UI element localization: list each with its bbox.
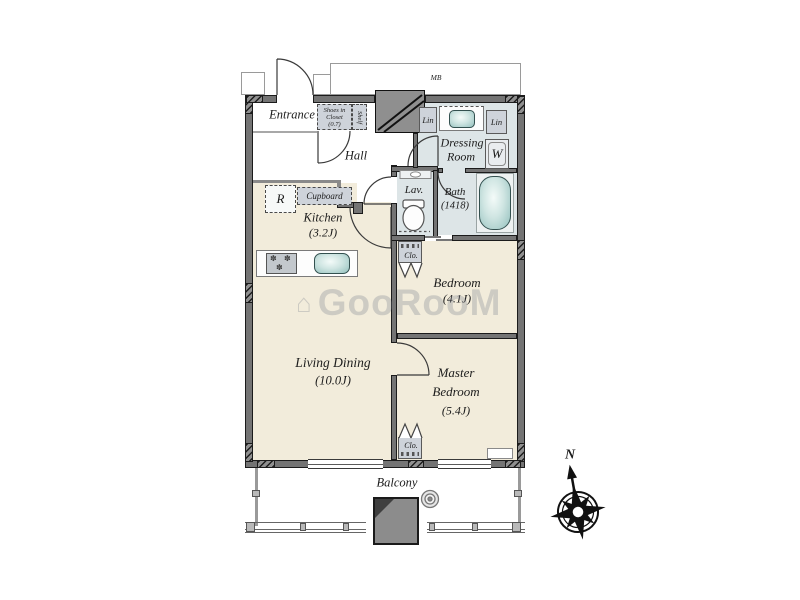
washing-machine-drum: W xyxy=(488,142,506,166)
master-closet-label: Clo. xyxy=(404,442,418,450)
hall-kitchen-wall xyxy=(253,180,340,183)
bedroom-size: (4.1J) xyxy=(443,293,471,306)
kitchen-label: Kitchen xyxy=(304,211,343,224)
lav-doorway xyxy=(391,177,397,203)
wall-hatch xyxy=(245,283,253,303)
kitchen-sink xyxy=(314,253,350,274)
hall-dressing-wall xyxy=(413,133,418,168)
master-window xyxy=(438,459,491,469)
living-dining-size: (10.0J) xyxy=(315,374,351,387)
lavatory-label: Lav. xyxy=(405,185,423,197)
wall-hatch xyxy=(408,460,424,468)
floor-plan: Shoes in Closet (0.7) Shelf R Cupboard ✽… xyxy=(0,0,800,600)
linen-right-label: Lin xyxy=(491,117,502,127)
spine-wall-b xyxy=(391,203,397,343)
closet-hatch xyxy=(401,244,419,248)
bedroom-sliding-door xyxy=(425,237,452,240)
bedroom-master-wall xyxy=(397,333,517,339)
spine-wall-c xyxy=(391,375,397,460)
rail-post xyxy=(429,523,435,531)
entrance-step-line xyxy=(253,131,317,133)
shoes-closet-label2: Closet xyxy=(326,114,343,121)
washing-machine: W xyxy=(485,139,509,169)
master-closet: Clo. xyxy=(398,437,422,459)
entrance-alcove-right xyxy=(313,74,331,95)
wall-hatch xyxy=(246,95,263,103)
dressing-room-label1: Dressing xyxy=(441,137,484,150)
hall-corner-post xyxy=(353,202,363,214)
shoes-shelf: Shelf xyxy=(352,104,367,130)
linen-cabinet-right: Lin xyxy=(486,110,507,134)
hall-label: Hall xyxy=(345,149,367,162)
living-dining-label: Living Dining xyxy=(295,356,370,370)
shoes-closet: Shoes in Closet (0.7) xyxy=(317,104,352,130)
top-wall-mid xyxy=(313,95,375,103)
wall-hatch xyxy=(517,240,525,260)
vanity-sink xyxy=(449,110,475,128)
bath-label: Bath xyxy=(445,187,466,199)
bath-doorway xyxy=(441,168,465,173)
entrance-door xyxy=(277,59,313,95)
evacuation-hatch xyxy=(373,497,419,545)
rail-post xyxy=(246,522,255,532)
balcony-side-rail-right xyxy=(518,468,521,526)
common-corridor xyxy=(330,63,521,95)
bedroom-closet-label: Clo. xyxy=(404,252,418,260)
cupboard: Cupboard xyxy=(297,187,352,205)
bathtub xyxy=(479,176,511,230)
bedroom-closet: Clo. xyxy=(398,241,422,263)
master-doorway xyxy=(391,343,397,375)
entrance-alcove-left xyxy=(241,72,265,95)
linen-left-label: Lin xyxy=(422,115,433,125)
balcony-label: Balcony xyxy=(377,476,418,489)
compass-rose-icon xyxy=(542,460,611,545)
bath-size: (1418) xyxy=(441,200,469,211)
rail-post xyxy=(343,523,349,531)
rail-post xyxy=(472,523,478,531)
rail-foot xyxy=(252,490,260,497)
wall-hatch xyxy=(505,95,518,103)
shoes-closet-label3: (0.7) xyxy=(328,121,340,128)
wall-hatch xyxy=(505,460,521,468)
kitchen-size: (3.2J) xyxy=(309,227,337,240)
burner-icon: ✽ xyxy=(276,263,283,272)
dressing-room-label2: Room xyxy=(447,151,475,164)
balcony-side-rail-left xyxy=(255,468,258,526)
right-wall xyxy=(517,95,525,468)
washer-label: W xyxy=(492,146,503,162)
wall-hatch xyxy=(517,96,525,114)
left-wall xyxy=(245,95,253,468)
closet-hatch xyxy=(401,452,419,456)
rail-foot xyxy=(514,490,522,497)
master-bedroom-label2: Bedroom xyxy=(432,385,479,399)
master-ac-slot xyxy=(487,448,513,459)
master-bedroom-size: (5.4J) xyxy=(442,405,470,418)
pipe-shaft xyxy=(375,90,425,133)
shelf-label: Shelf xyxy=(356,111,363,124)
lav-bath-wall xyxy=(433,170,438,237)
linen-cabinet-left: Lin xyxy=(419,107,437,133)
stove: ✽ ✽ ✽ xyxy=(266,253,297,274)
refrigerator-space: R xyxy=(265,185,296,213)
master-bedroom-label1: Master xyxy=(438,366,475,380)
wall-hatch xyxy=(245,443,253,462)
hall-notch-floor xyxy=(357,183,391,202)
burner-icon: ✽ xyxy=(284,254,291,263)
bedroom-label: Bedroom xyxy=(433,276,480,290)
refrigerator-label: R xyxy=(277,191,285,207)
bath-top-wall-left xyxy=(438,168,443,173)
shoes-closet-label1: Shoes in xyxy=(324,107,346,114)
rail-post xyxy=(300,523,306,531)
meter-box-label: MB xyxy=(431,74,442,82)
rail-post xyxy=(512,522,521,532)
cupboard-label: Cupboard xyxy=(306,191,342,201)
bedroom-top-wall-right xyxy=(452,235,517,241)
living-window xyxy=(308,459,383,469)
wall-hatch xyxy=(257,460,275,468)
entrance-label: Entrance xyxy=(269,108,315,121)
compass-north-label: N xyxy=(565,449,575,464)
burner-icon: ✽ xyxy=(270,254,277,263)
lavatory-floor xyxy=(397,170,433,237)
